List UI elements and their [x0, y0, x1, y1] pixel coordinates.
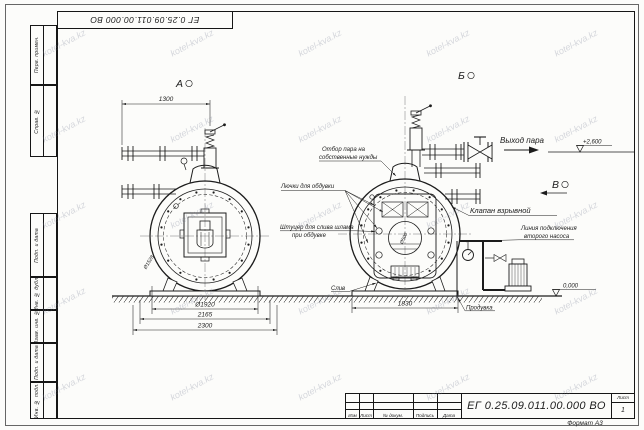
label-pump-line-2: второго насоса [524, 234, 570, 240]
elevation-mark-top [548, 146, 634, 153]
steam-outlet-valve [464, 137, 492, 162]
label-explosion-valve: Клапан взрывной [470, 206, 531, 215]
label-sludge-drain-2: при обдувке [292, 233, 327, 239]
feed-pump [505, 259, 531, 291]
label-blowoff-hatches: Лючки для обдувки [280, 184, 335, 190]
dim-2300: 2300 [197, 323, 213, 330]
label-elevation-zero: 0,000 [563, 284, 579, 290]
view-a-bubble [186, 80, 192, 86]
dim-front-dia: Ø1920 [194, 302, 215, 309]
dim-1300: 1300 [159, 96, 174, 103]
centerlines [140, 96, 472, 300]
blowoff-hatch-left [382, 202, 403, 217]
steam-outlet-piping [422, 137, 492, 162]
view-a-label: А [175, 78, 183, 90]
dome-valve [181, 158, 187, 164]
pump-connection-piping [457, 241, 509, 298]
saddle-support [233, 278, 247, 291]
label-sludge-drain-1: Штуцер для слива шлама [280, 225, 354, 231]
saddle-support [163, 278, 177, 291]
safety-valve-right [407, 104, 432, 167]
label-drain: Слив [331, 286, 345, 292]
label-pump-line-1: Линия подключения [520, 226, 577, 232]
ground-hatch [112, 296, 562, 303]
label-own-needs-2: собственные нужды [319, 155, 378, 161]
steam-flow-arrow [504, 147, 539, 154]
saddle-support [365, 277, 378, 291]
elevation-mark-zero [553, 290, 597, 297]
view-v-label: В [552, 179, 559, 191]
pressure-gauge [463, 241, 474, 261]
dim-2165: 2165 [197, 312, 213, 319]
label-blowdown: Продувка [466, 306, 493, 312]
boiler-drawing: А Б В Выход пара +2,600 0,000 Отбор пара… [0, 0, 644, 430]
saddle-support [432, 277, 445, 291]
dim-1830: 1830 [398, 301, 413, 308]
blowoff-hatch-right [407, 202, 428, 217]
base-frame [352, 291, 458, 296]
base-frame [150, 291, 260, 296]
view-b-label: Б [458, 70, 465, 82]
drawing-sheet: ЕГ 0.25.09.011.00.000 ВО Перв. примен. С… [0, 0, 644, 430]
label-own-needs-1: Отбор пара на [322, 147, 366, 153]
side-piping-right [424, 163, 480, 204]
dim-shell-dia: Ø1528 [142, 254, 156, 271]
label-steam-outlet: Выход пара [500, 136, 545, 145]
label-elevation-top: +2,600 [583, 140, 602, 146]
safety-valve-left [201, 123, 226, 168]
view-b-bubble [468, 72, 474, 78]
